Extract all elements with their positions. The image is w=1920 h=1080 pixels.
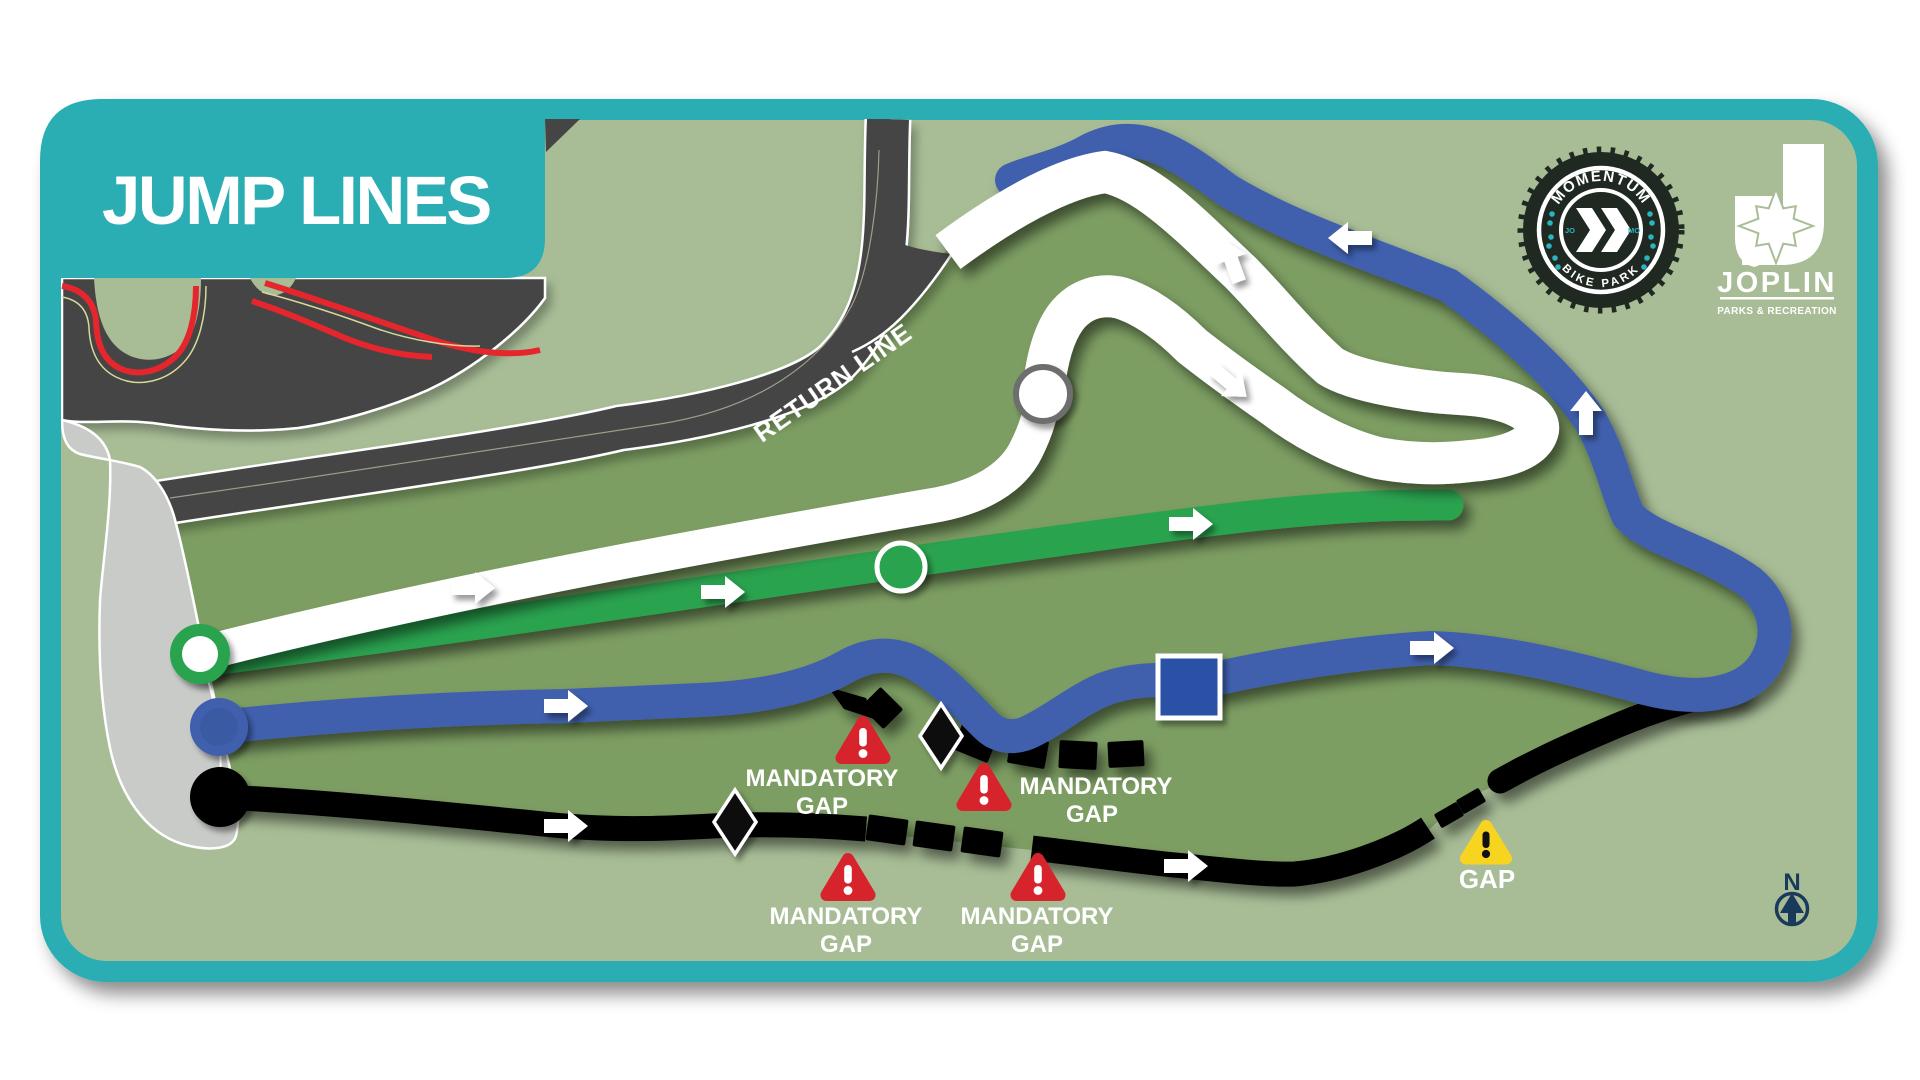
svg-text:GAP: GAP xyxy=(1066,801,1118,828)
svg-text:MANDATORY: MANDATORY xyxy=(1020,773,1173,800)
svg-text:MANDATORY: MANDATORY xyxy=(746,765,899,792)
svg-text:MO: MO xyxy=(1628,226,1640,235)
svg-text:GAP: GAP xyxy=(1459,864,1515,894)
svg-text:GAP: GAP xyxy=(820,931,872,958)
svg-text:JUMP LINES: JUMP LINES xyxy=(102,162,490,239)
svg-text:GAP: GAP xyxy=(1011,931,1063,958)
svg-text:JOPLIN: JOPLIN xyxy=(1717,267,1837,299)
svg-text:MANDATORY: MANDATORY xyxy=(961,903,1114,930)
svg-text:PARKS & RECREATION: PARKS & RECREATION xyxy=(1717,306,1837,317)
svg-text:MANDATORY: MANDATORY xyxy=(770,903,923,930)
svg-text:JO: JO xyxy=(1565,226,1575,235)
svg-text:GAP: GAP xyxy=(796,793,848,820)
